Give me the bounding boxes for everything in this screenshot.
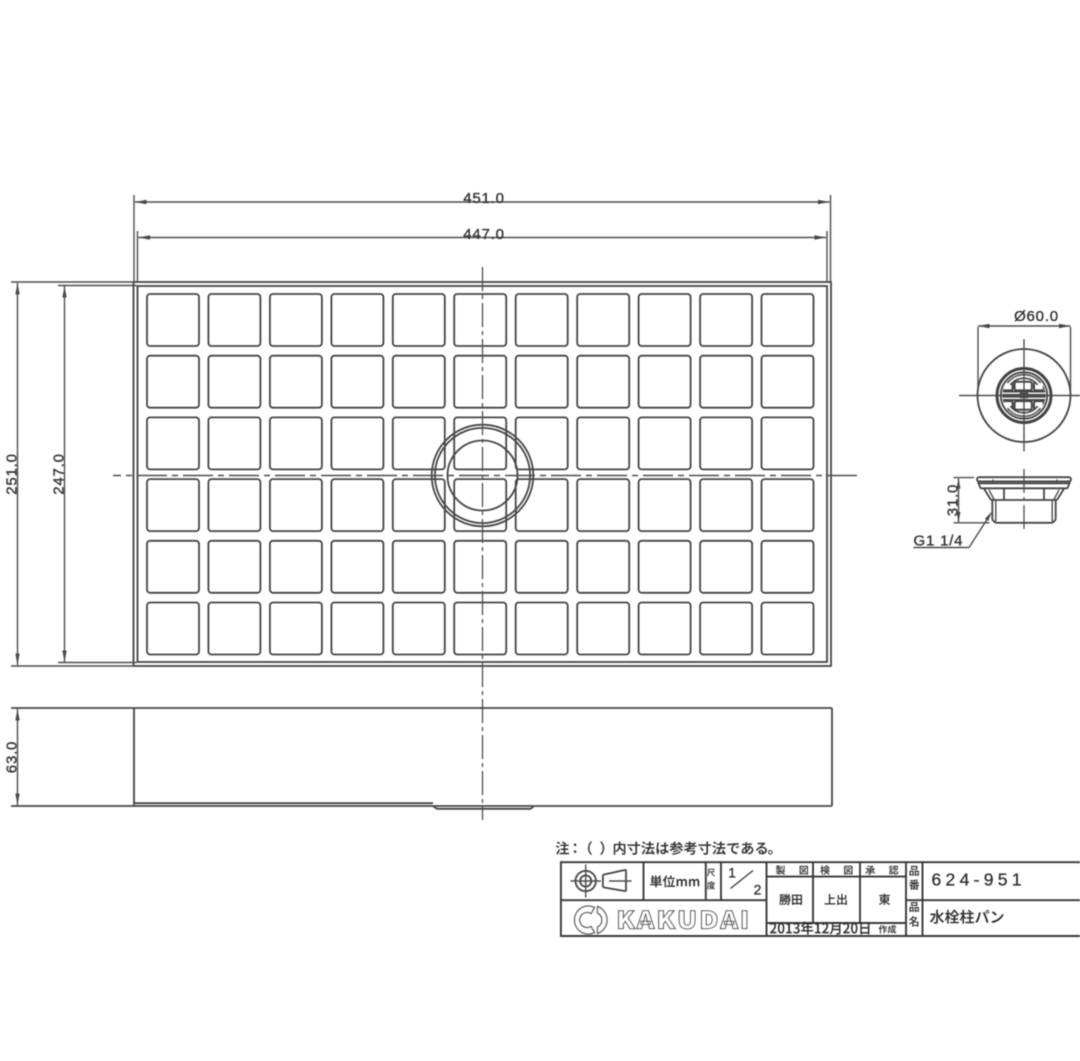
svg-text:447.0: 447.0 bbox=[463, 226, 505, 243]
svg-text:451.0: 451.0 bbox=[463, 190, 505, 207]
svg-text:247.0: 247.0 bbox=[51, 453, 68, 495]
svg-text:31.0: 31.0 bbox=[944, 484, 961, 516]
svg-text:Ø60.0: Ø60.0 bbox=[1014, 308, 1059, 325]
svg-text:2: 2 bbox=[754, 882, 762, 898]
svg-text:624-951: 624-951 bbox=[932, 870, 1026, 890]
svg-text:251.0: 251.0 bbox=[4, 453, 21, 495]
svg-text:1: 1 bbox=[728, 865, 736, 881]
svg-text:63.0: 63.0 bbox=[4, 741, 21, 773]
